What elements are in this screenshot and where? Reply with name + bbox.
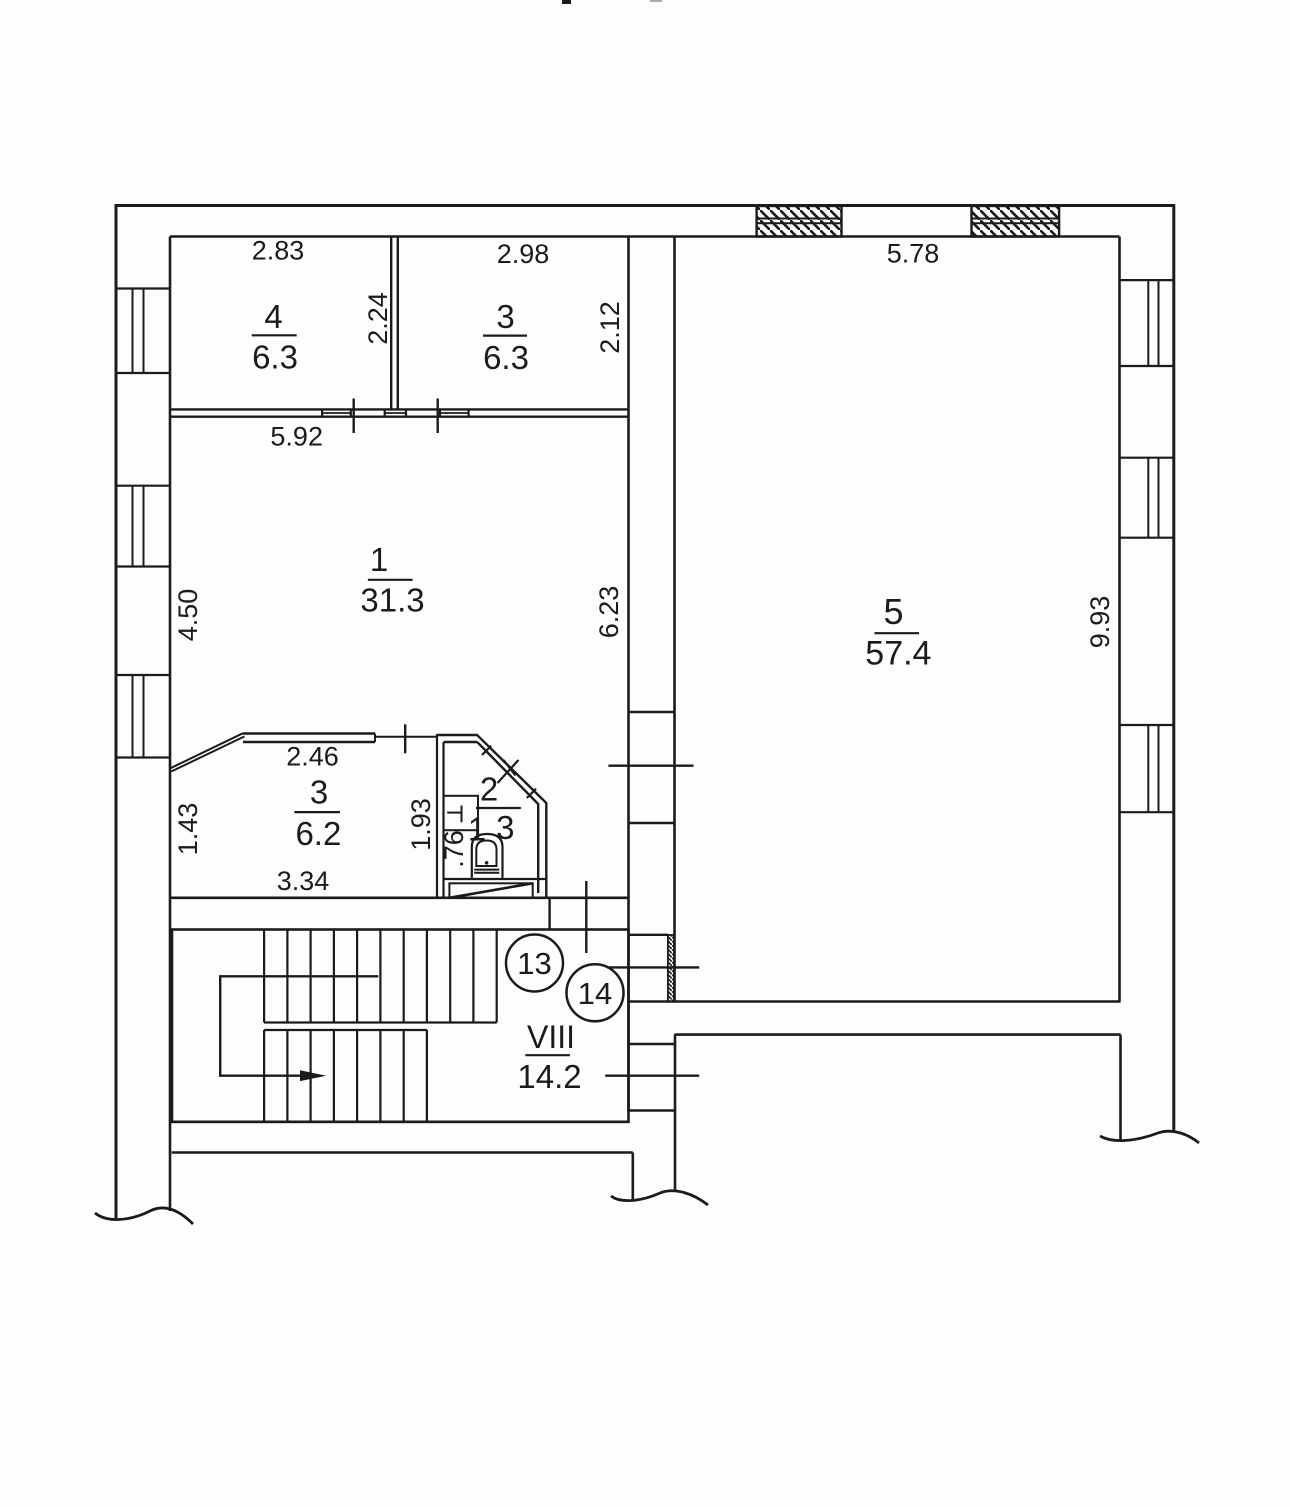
svg-text:3.34: 3.34 [277, 866, 330, 896]
svg-text:14: 14 [578, 976, 612, 1011]
svg-text:2.98: 2.98 [497, 239, 550, 269]
svg-text:1: 1 [370, 541, 388, 578]
svg-text:4: 4 [264, 298, 282, 335]
svg-text:31.3: 31.3 [360, 582, 424, 619]
svg-text:5.78: 5.78 [887, 239, 940, 269]
svg-text:6.3: 6.3 [483, 339, 529, 376]
svg-text:6.2: 6.2 [295, 815, 341, 852]
svg-text:2.83: 2.83 [252, 236, 305, 266]
svg-text:2.46: 2.46 [286, 742, 339, 772]
svg-text:14.2: 14.2 [517, 1058, 581, 1095]
svg-text:3: 3 [496, 809, 514, 846]
svg-text:2.12: 2.12 [595, 301, 625, 354]
svg-text:57.4: 57.4 [865, 634, 931, 672]
svg-text:.76: .76 [439, 830, 469, 868]
svg-text:13: 13 [517, 946, 551, 981]
svg-text:VIII: VIII [527, 1019, 575, 1055]
svg-text:1.93: 1.93 [406, 798, 436, 851]
svg-text:1.43: 1.43 [173, 803, 203, 856]
svg-text:3: 3 [496, 298, 514, 335]
svg-text:2.24: 2.24 [363, 292, 393, 345]
svg-text:4.50: 4.50 [173, 589, 203, 642]
svg-text:2: 2 [480, 771, 498, 808]
svg-text:5.92: 5.92 [270, 422, 323, 452]
svg-text:3: 3 [310, 774, 328, 811]
svg-text:6.3: 6.3 [252, 339, 298, 376]
svg-text:9.93: 9.93 [1085, 596, 1115, 649]
svg-text:6.23: 6.23 [594, 586, 624, 639]
svg-text:5: 5 [883, 591, 903, 632]
